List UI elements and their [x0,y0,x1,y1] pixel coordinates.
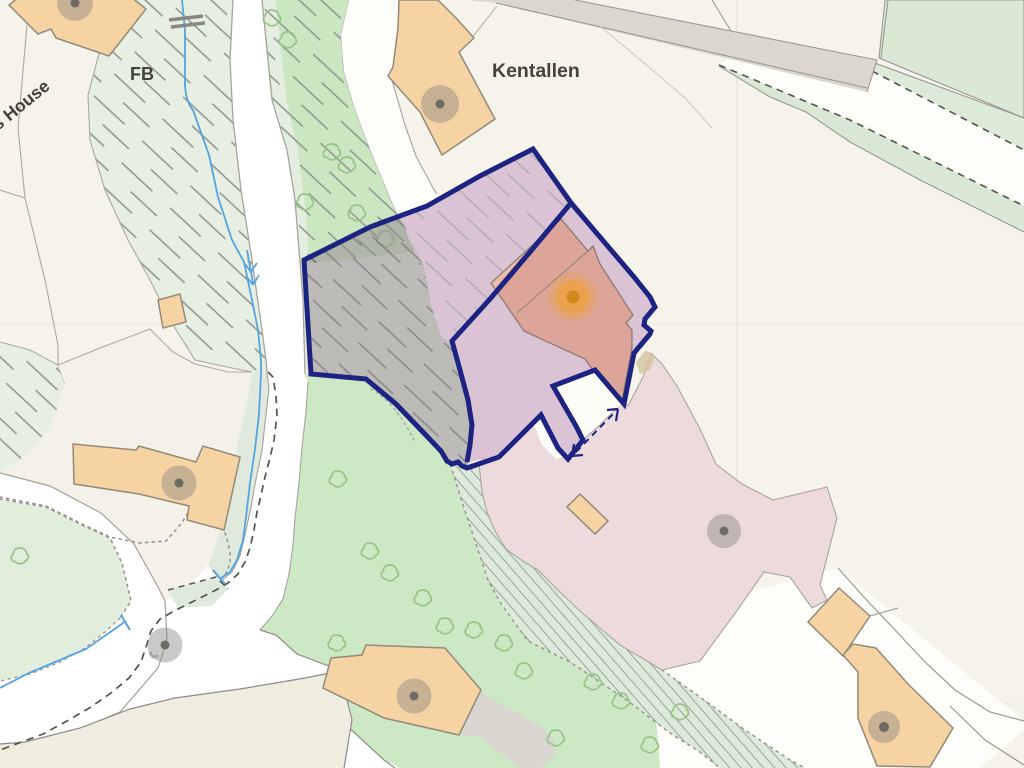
svg-text:FB: FB [130,64,154,84]
svg-text:Kentallen: Kentallen [492,60,580,82]
